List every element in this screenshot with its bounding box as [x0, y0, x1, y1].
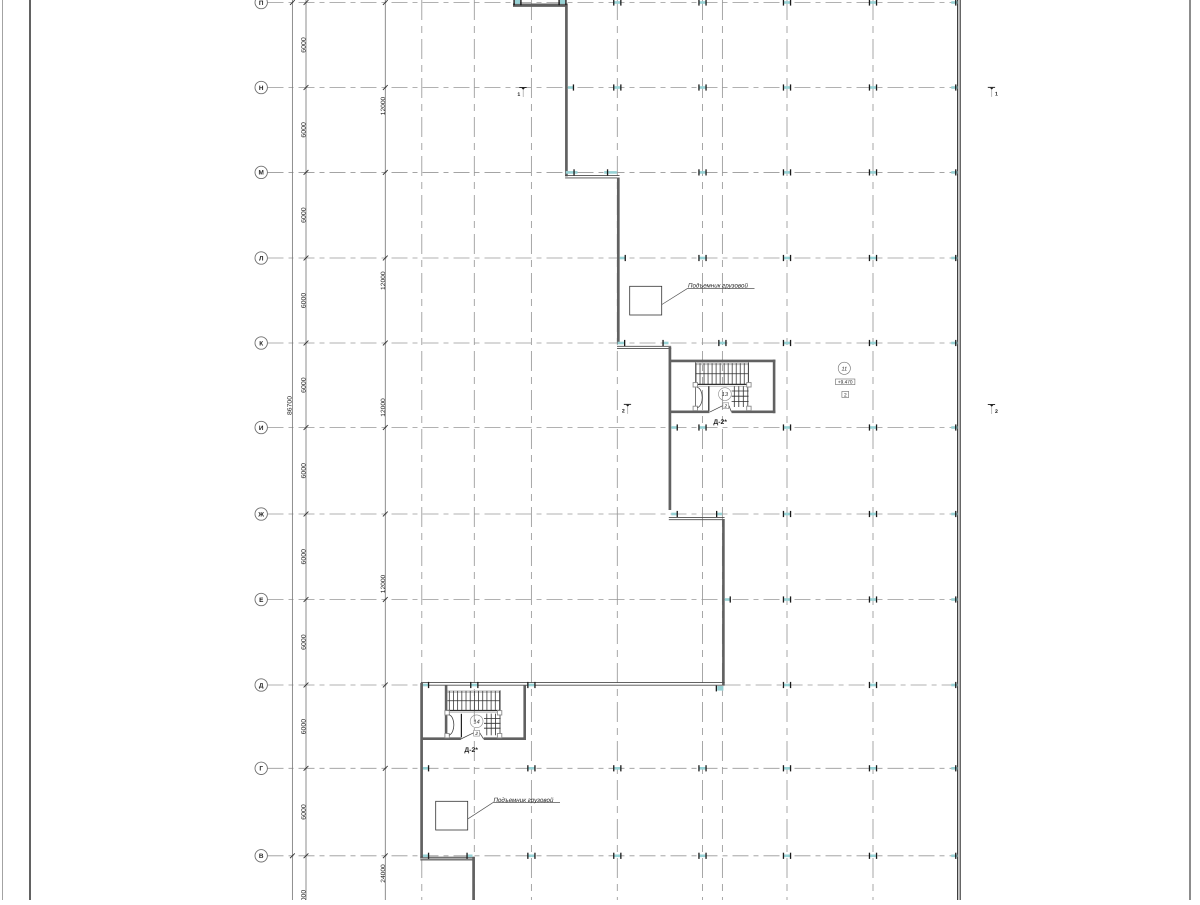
svg-text:1: 1 — [517, 92, 520, 98]
svg-text:6000: 6000 — [300, 462, 307, 478]
svg-text:1: 1 — [995, 92, 998, 98]
svg-text:6000: 6000 — [300, 804, 307, 820]
svg-text:6000: 6000 — [300, 548, 307, 564]
svg-text:6000: 6000 — [300, 207, 307, 223]
svg-text:В: В — [259, 853, 264, 860]
svg-text:Ж: Ж — [257, 511, 264, 518]
svg-text:12000: 12000 — [380, 271, 387, 290]
svg-text:6000: 6000 — [300, 292, 307, 308]
svg-text:2: 2 — [622, 409, 625, 415]
svg-text:24000: 24000 — [380, 864, 387, 883]
svg-text:11: 11 — [841, 366, 847, 372]
svg-text:Д-2*: Д-2* — [464, 747, 478, 754]
svg-text:Е: Е — [259, 597, 264, 604]
svg-text:Г: Г — [259, 766, 263, 773]
svg-text:6000: 6000 — [300, 37, 307, 53]
svg-text:14: 14 — [473, 719, 479, 725]
svg-text:2: 2 — [474, 731, 478, 736]
svg-text:6000: 6000 — [300, 889, 307, 900]
svg-text:6000: 6000 — [300, 718, 307, 734]
svg-text:2: 2 — [844, 392, 847, 398]
svg-text:К: К — [259, 340, 263, 347]
svg-text:12000: 12000 — [380, 96, 387, 115]
svg-text:И: И — [259, 425, 264, 432]
svg-text:6000: 6000 — [300, 634, 307, 650]
svg-text:6000: 6000 — [300, 122, 307, 138]
svg-text:12000: 12000 — [380, 574, 387, 593]
svg-text:Л: Л — [259, 255, 264, 262]
svg-text:Н: Н — [259, 85, 264, 92]
svg-text:86700: 86700 — [287, 395, 294, 415]
svg-text:12000: 12000 — [380, 398, 387, 417]
svg-text:+9.470: +9.470 — [838, 380, 853, 386]
svg-text:Подъемник грузовой: Подъемник грузовой — [688, 282, 748, 289]
svg-text:Подъемник грузовой: Подъемник грузовой — [494, 797, 554, 804]
svg-text:М: М — [259, 170, 264, 177]
svg-text:П: П — [259, 0, 264, 7]
svg-text:2: 2 — [995, 409, 998, 415]
svg-text:6000: 6000 — [300, 377, 307, 393]
svg-text:Д-2*: Д-2* — [713, 419, 727, 426]
svg-text:13: 13 — [722, 392, 729, 398]
svg-text:Д: Д — [259, 682, 264, 689]
svg-text:2: 2 — [724, 404, 728, 409]
